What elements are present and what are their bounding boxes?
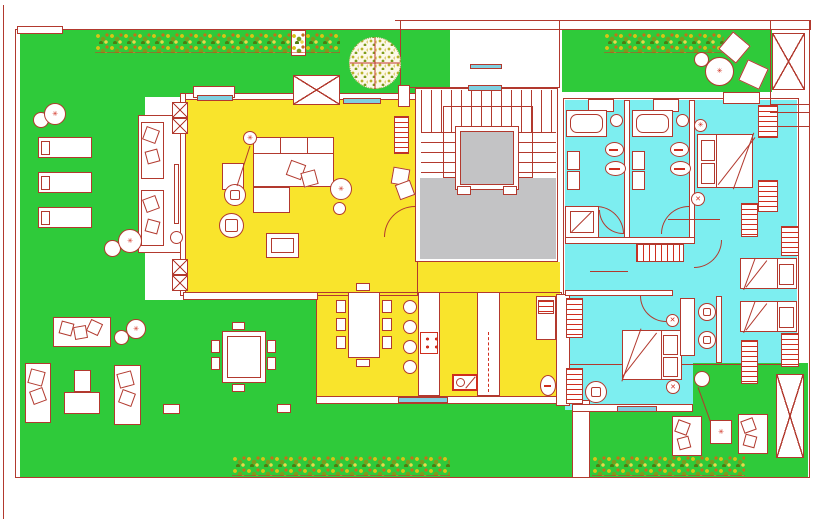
- sink-bowl: [456, 378, 465, 387]
- bath-cabinet: [567, 171, 580, 190]
- chair: [585, 381, 607, 403]
- wall-baths-south: [565, 237, 695, 244]
- counter-dash: [488, 332, 489, 392]
- hd: [41, 141, 50, 155]
- double-bed: [622, 330, 682, 380]
- planter-bed1-north: [723, 92, 760, 104]
- wardrobe: [741, 340, 758, 384]
- sofa-chaise: [253, 187, 290, 213]
- pw: [701, 140, 715, 161]
- in: [591, 387, 602, 398]
- fl: [743, 258, 755, 290]
- chair: [356, 359, 370, 367]
- fl: [777, 259, 778, 288]
- jamb-terrace: [398, 85, 410, 107]
- hedge-top-right: [604, 32, 724, 53]
- chair: [211, 340, 220, 353]
- radiator: [781, 226, 799, 256]
- plant: ✳: [243, 131, 257, 145]
- side-table-base: [64, 392, 100, 414]
- chair: [356, 283, 370, 291]
- chair: [698, 331, 716, 349]
- bath-cabinet: [632, 171, 645, 190]
- sun-lounger: [38, 172, 92, 193]
- column: [172, 259, 188, 275]
- column: [172, 275, 188, 291]
- stool: [403, 360, 417, 374]
- window-entry: [470, 64, 502, 69]
- drain: [163, 404, 180, 414]
- bidet: [670, 161, 691, 176]
- bidet: [605, 161, 626, 176]
- toilet: [670, 142, 689, 157]
- bath-cabinet: [567, 151, 580, 170]
- chair: [232, 322, 245, 330]
- single-bed: [740, 301, 797, 332]
- column: [772, 33, 805, 90]
- column: [776, 374, 804, 458]
- sun-lounger: [38, 207, 92, 228]
- outdoor-table: [222, 331, 266, 383]
- in: [703, 308, 712, 317]
- planter: ✳: [44, 103, 66, 125]
- stair-stub-right: [503, 186, 517, 195]
- tree: [349, 37, 401, 89]
- east-boundary: [810, 20, 811, 30]
- radiator: [781, 333, 799, 367]
- chair: [267, 357, 276, 370]
- living-outline: [183, 98, 418, 296]
- chair: [382, 300, 392, 313]
- fl: [716, 135, 717, 187]
- lamp: ✕: [666, 314, 679, 327]
- entry-step: [770, 112, 810, 113]
- pw: [779, 307, 794, 328]
- stair-core-outline: [460, 131, 514, 185]
- drain: [277, 404, 291, 413]
- closet: [636, 244, 684, 262]
- entry-step: [770, 126, 810, 127]
- fl: [661, 331, 662, 379]
- column: [172, 102, 188, 118]
- bathtub: [566, 110, 607, 137]
- wardrobe: [741, 203, 758, 237]
- chair: [336, 300, 346, 313]
- cushion: [73, 325, 88, 340]
- in: [230, 190, 241, 201]
- page-border-left: [3, 5, 4, 519]
- planter: ✳: [126, 319, 146, 339]
- stair-stub-left: [457, 186, 471, 195]
- chair: [336, 336, 346, 349]
- fl: [743, 301, 755, 333]
- planter: [170, 231, 183, 244]
- in: [703, 336, 712, 345]
- plant: ✳: [694, 119, 707, 132]
- double-bed: [697, 134, 753, 188]
- window-living-1: [197, 95, 233, 101]
- chair: [211, 357, 220, 370]
- hedge-top-left: [95, 32, 340, 53]
- pw: [663, 357, 678, 377]
- pw: [663, 335, 678, 355]
- dining-table: [348, 292, 380, 358]
- hedge-bottom-right: [592, 455, 745, 476]
- window-kitchen: [398, 397, 448, 403]
- coffee-table: [266, 233, 299, 258]
- chair: [336, 318, 346, 331]
- hd: [41, 176, 50, 190]
- desk-chair: [224, 184, 246, 206]
- plant: [694, 371, 710, 387]
- sofa-divider: [280, 138, 281, 153]
- basin: [676, 114, 689, 127]
- sofa-divider: [307, 138, 308, 153]
- sofa-seat-line: [254, 153, 333, 154]
- rail: [668, 219, 720, 220]
- chair: [232, 384, 245, 392]
- wardrobe: [566, 368, 583, 404]
- shelf-marks: [538, 300, 554, 314]
- wardrobe: [566, 298, 583, 338]
- lamp: ✕: [666, 380, 680, 394]
- armchair: [219, 213, 244, 238]
- fl: [622, 333, 657, 377]
- stool: [403, 300, 417, 314]
- wall-living-south: [183, 292, 318, 300]
- chair: [267, 340, 276, 353]
- toilet: [605, 142, 624, 157]
- stool: [403, 320, 417, 334]
- wardrobe: [758, 180, 778, 212]
- radiator-strip: [174, 164, 179, 224]
- side-table: [74, 370, 91, 392]
- hedge-bottom-left: [232, 455, 450, 476]
- window-living-2: [343, 98, 381, 104]
- lamp: ✕: [691, 192, 705, 206]
- chair: [698, 303, 716, 321]
- wall-bedroom3-west: [716, 296, 722, 363]
- window-bedroom2: [617, 406, 657, 412]
- sun-lounger: [38, 137, 92, 158]
- floor-plan: ✳✳✳✳✳✳✕✕✕✳✳: [0, 0, 830, 525]
- single-bed: [740, 258, 797, 289]
- entry-hall: [400, 20, 560, 88]
- desk: [680, 298, 695, 356]
- wardrobe: [758, 105, 778, 138]
- terrace-table: ✳: [705, 57, 734, 86]
- hd: [41, 211, 50, 225]
- side-table: ✳: [330, 178, 352, 200]
- column: [172, 118, 188, 134]
- bath-cabinet: [632, 151, 645, 170]
- plant-pot: ✳: [710, 420, 732, 444]
- chair: [382, 336, 392, 349]
- column: [293, 75, 340, 105]
- chair: [382, 318, 392, 331]
- in: [225, 219, 237, 231]
- pw: [779, 264, 794, 285]
- fl: [777, 302, 778, 331]
- cooktop: [420, 332, 438, 354]
- planter-northwest: [17, 26, 63, 34]
- radiator: [394, 116, 409, 154]
- stair-landing: [420, 178, 556, 259]
- pw: [701, 163, 715, 184]
- basin: [610, 114, 623, 127]
- stool: [403, 340, 417, 354]
- planter: ✳: [118, 229, 142, 253]
- toilet: [540, 375, 556, 396]
- planter: [694, 52, 709, 67]
- side-table: [333, 202, 346, 215]
- bathtub: [632, 110, 673, 137]
- wall-line: [590, 271, 628, 272]
